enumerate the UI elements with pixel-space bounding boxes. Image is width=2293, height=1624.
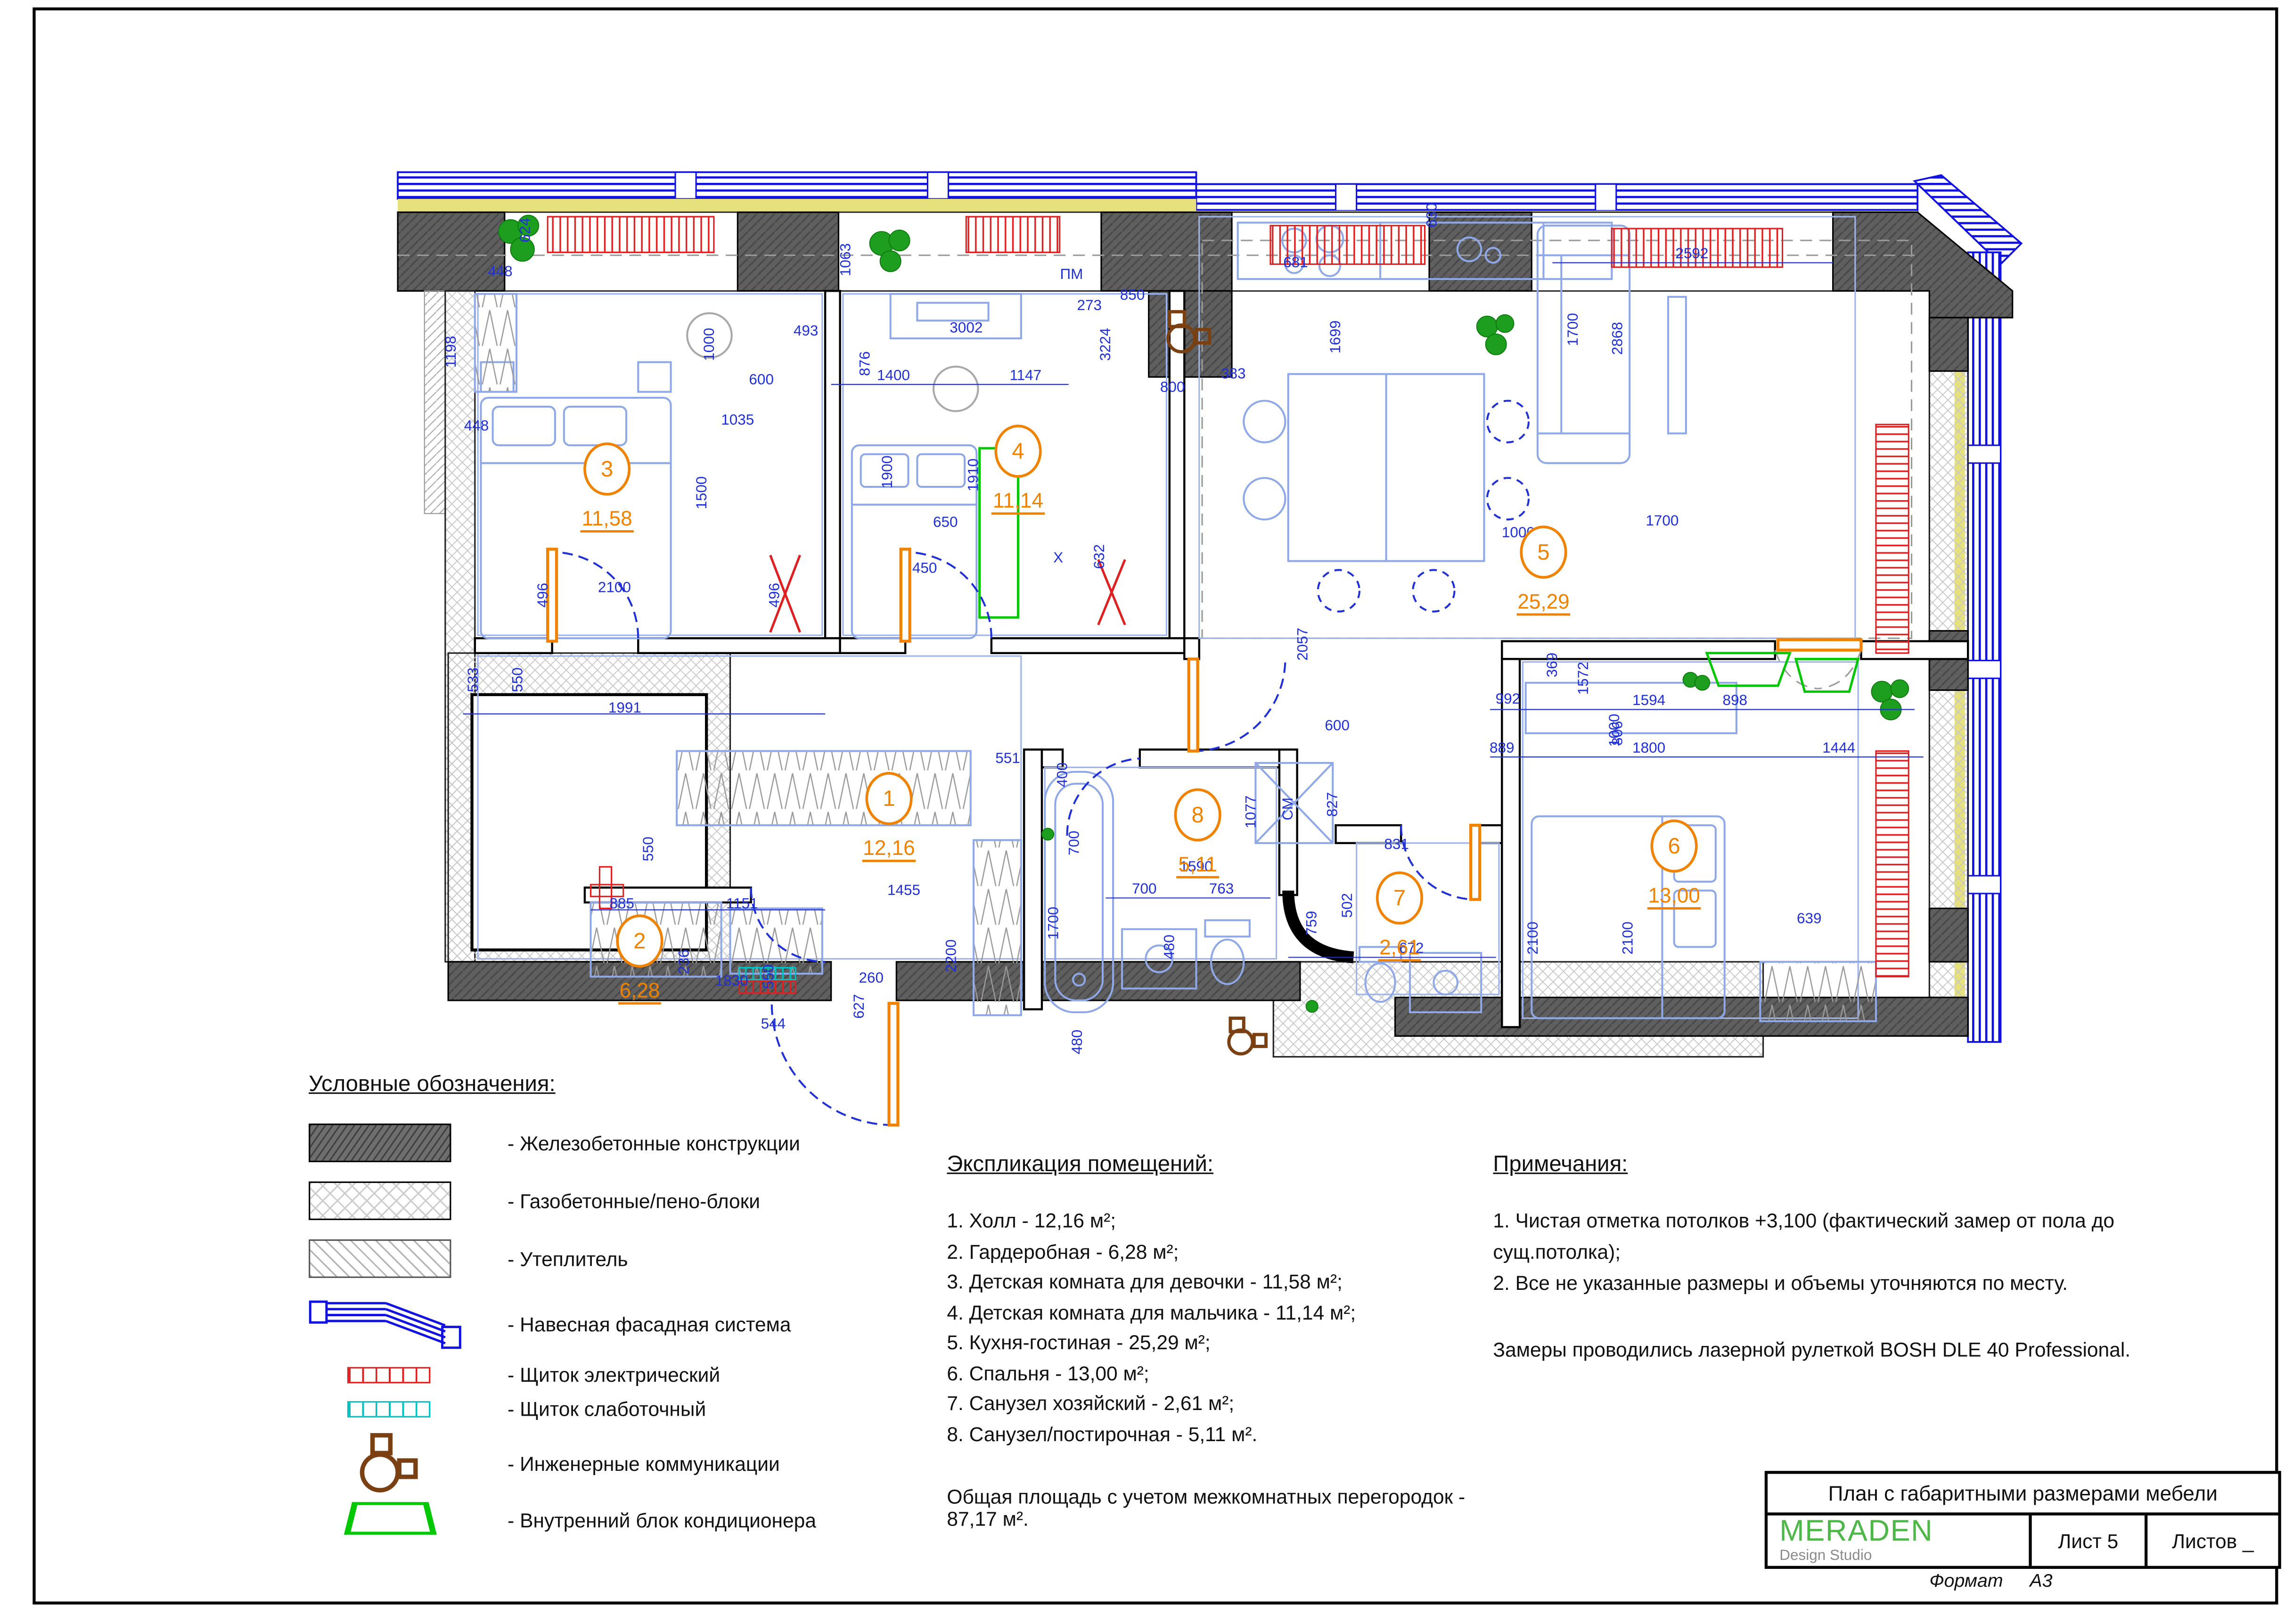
dimension-label: 1077 — [1242, 796, 1259, 828]
room-area: 13,00 — [1648, 884, 1700, 907]
notes-list: 1. Чистая отметка потолков +3,100 (факти… — [1493, 1205, 2161, 1298]
legend-swatch-cell — [309, 1297, 490, 1351]
explication-total: Общая площадь с учетом межкомнатных пере… — [947, 1486, 1511, 1530]
note-line: 1. Чистая отметка потолков +3,100 (факти… — [1493, 1205, 2161, 1267]
legend-item-concrete: - Железобетонные конструкции — [309, 1124, 828, 1162]
dimension-label: 700 — [1132, 880, 1157, 897]
dimension-label: 827 — [1324, 792, 1341, 817]
dimension-label: 831 — [1384, 836, 1409, 853]
explication-room: 4. Детская комната для мальчика - 11,14 … — [947, 1298, 1511, 1329]
dimension-label: 992 — [1496, 690, 1521, 707]
dimension-label: 493 — [794, 322, 819, 339]
dimension-label: 700 — [1065, 831, 1082, 856]
room-number: 2 — [633, 929, 646, 954]
legend-item-insulation: - Утеплитель — [309, 1239, 828, 1278]
dimension-label: 1000 — [700, 328, 717, 361]
dimension-label: 1500 — [693, 476, 710, 509]
dimension-label: 480 — [1068, 1030, 1085, 1055]
explication-heading: Экспликация помещений: — [947, 1152, 1511, 1177]
title-block-bottom: MERADEN Design Studio Лист 5 Листов _ — [1768, 1516, 2278, 1566]
format-value: А3 — [2030, 1570, 2052, 1591]
legend-item-blocks: - Газобетонные/пено-блоки — [309, 1181, 828, 1220]
dimension-label: 681 — [1283, 254, 1308, 271]
dimension-label: 3002 — [950, 319, 983, 336]
utilities-swatch-icon — [350, 1432, 418, 1494]
concrete-swatch-icon — [309, 1124, 451, 1162]
dimension-label: 550 — [509, 667, 526, 692]
legend-label: - Газобетонные/пено-блоки — [508, 1189, 760, 1212]
room-area: 11,14 — [993, 489, 1043, 512]
dimension-label: 450 — [912, 559, 937, 576]
insulation-swatch-icon — [309, 1239, 451, 1278]
explication-room: 1. Холл - 12,16 м²; — [947, 1207, 1511, 1238]
legend-item-panel-electric: - Щиток электрический — [309, 1364, 828, 1386]
dimension-label: 759 — [1303, 911, 1320, 936]
explication-room: 3. Детская комната для девочки - 11,58 м… — [947, 1268, 1511, 1298]
dimension-label: 273 — [1077, 296, 1102, 313]
explication-room: 2. Гардеробная - 6,28 м²; — [947, 1237, 1511, 1268]
dimension-label: 1198 — [442, 336, 459, 368]
brand-name: MERADEN — [1779, 1517, 2029, 1548]
dimension-label: 1991 — [608, 699, 641, 716]
room-area: 2,61 — [1379, 936, 1420, 959]
room-number: 8 — [1192, 803, 1204, 828]
room-area: 11,58 — [582, 507, 632, 530]
dimension-label: 1700 — [1045, 907, 1062, 940]
legend-swatch-cell — [309, 1501, 490, 1539]
legend-swatch-cell — [309, 1239, 490, 1278]
dimension-label: 1700 — [1646, 512, 1679, 529]
dimension-label: 2100 — [598, 579, 631, 596]
dimension-label: СМ — [1279, 797, 1296, 820]
explication-room: 6. Спальня - 13,00 м²; — [947, 1359, 1511, 1389]
dimension-label: 1900 — [878, 456, 895, 489]
dimension-label: 600 — [749, 371, 774, 388]
brand-subtitle: Design Studio — [1779, 1548, 2029, 1565]
dimension-label: 1035 — [721, 411, 754, 428]
legend-item-panel-lowcurrent: - Щиток слаботочный — [309, 1398, 828, 1420]
dimension-label: 448 — [488, 262, 513, 279]
room-number: 1 — [883, 786, 895, 811]
legend-label: - Железобетонные конструкции — [508, 1132, 800, 1154]
dimension-label: 400 — [1053, 763, 1070, 787]
dimension-label: 502 — [1338, 893, 1355, 918]
legend-swatch-cell — [309, 1432, 490, 1494]
dimension-label: 533 — [464, 667, 481, 692]
room-number: 6 — [1668, 834, 1680, 859]
dimension-label: 2868 — [1608, 322, 1625, 355]
dimension-label: 496 — [534, 583, 551, 608]
dimension-label: 800 — [1160, 378, 1185, 395]
dimension-label: 3224 — [1097, 328, 1114, 361]
facade-swatch-icon — [309, 1297, 469, 1351]
drawing-sheet: 4481198624100010633002493876140060011474… — [0, 0, 2293, 1624]
legend-swatch-cell — [309, 1367, 490, 1384]
drawing-title: План с габаритными размерами мебели — [1768, 1474, 2278, 1515]
room-area: 12,16 — [863, 837, 915, 860]
dimension-label: 236 — [675, 950, 692, 975]
ac-unit-swatch-icon — [341, 1501, 439, 1539]
legend-item-ac-unit: - Внутренний блок кондиционера — [309, 1501, 828, 1539]
legend-swatch-cell — [309, 1124, 490, 1162]
legend-label: - Щиток электрический — [508, 1364, 720, 1386]
dimension-label: 898 — [1722, 691, 1747, 708]
legend-label: - Инженерные коммуникации — [508, 1452, 780, 1475]
dimension-label: 2200 — [942, 939, 959, 972]
legend-label: - Щиток слаботочный — [508, 1398, 706, 1420]
dimension-label: ПМ — [1060, 265, 1083, 282]
dimension-label: 1910 — [965, 459, 982, 492]
dimension-label: 1063 — [837, 243, 854, 276]
dimension-label: 1699 — [1327, 320, 1343, 353]
sheets-total: Листов _ — [2145, 1516, 2278, 1566]
dimension-label: 550 — [760, 964, 777, 989]
dimension-label: 806 — [1608, 721, 1625, 746]
note-line: 2. Все не указанные размеры и объемы уто… — [1493, 1268, 2161, 1299]
dimension-label: 1594 — [1632, 691, 1665, 708]
dimension-label: 885 — [609, 894, 634, 911]
dimension-label: 632 — [1090, 544, 1107, 569]
room-area: 5,11 — [1178, 853, 1217, 876]
dimension-label: X — [1053, 549, 1063, 566]
room-number: 7 — [1393, 886, 1406, 910]
dimension-label: 850 — [1120, 286, 1145, 303]
explication-room: 8. Санузел/постирочная - 5,11 м². — [947, 1419, 1511, 1450]
room-area: 6,28 — [620, 979, 660, 1002]
room-area: 25,29 — [1517, 590, 1569, 613]
dimension-label: 1151 — [726, 894, 758, 911]
room-number: 5 — [1537, 540, 1549, 565]
dimension-label: 369 — [1543, 653, 1560, 678]
legend: Условные обозначения: - Железобетонные к… — [309, 1072, 828, 1539]
dimension-label: 480 — [1160, 935, 1177, 960]
notes-heading: Примечания: — [1493, 1152, 2161, 1177]
dimension-label: 1572 — [1574, 662, 1591, 695]
dimension-label: 630 — [1423, 203, 1440, 228]
explication-room: 5. Кухня-гостиная - 25,29 м²; — [947, 1329, 1511, 1359]
legend-swatch-cell — [309, 1401, 490, 1418]
dimension-label: 1800 — [1632, 739, 1665, 756]
dimension-label: 1830 — [715, 972, 748, 989]
panel-electric-swatch-icon — [347, 1367, 430, 1384]
dimension-label: 876 — [856, 351, 873, 376]
dimension-label: 2100 — [1524, 921, 1541, 954]
dimension-label: 1400 — [877, 366, 910, 383]
legend-item-facade: - Навесная фасадная система — [309, 1297, 828, 1351]
dimension-label: 544 — [761, 1015, 786, 1032]
brand-cell: MERADEN Design Studio — [1768, 1516, 2029, 1566]
dimension-label: 1700 — [1564, 313, 1581, 346]
panel-lowcurrent-swatch-icon — [347, 1401, 430, 1418]
dimension-label: 260 — [859, 969, 884, 986]
format-note: Формат А3 — [1929, 1570, 2052, 1591]
legend-label: - Утеплитель — [508, 1247, 628, 1270]
dimension-label: 1444 — [1822, 739, 1855, 756]
legend-swatch-cell — [309, 1181, 490, 1220]
dimension-label: 763 — [1209, 880, 1234, 897]
explication-list: 1. Холл - 12,16 м²;2. Гардеробная - 6,28… — [947, 1207, 1511, 1451]
legend-heading: Условные обозначения: — [309, 1072, 828, 1097]
dimension-label: 2057 — [1294, 628, 1311, 661]
legend-label: - Навесная фасадная система — [508, 1313, 791, 1335]
dimension-label: 624 — [516, 218, 533, 243]
room-number: 3 — [601, 457, 613, 482]
legend-list: - Железобетонные конструкции- Газобетонн… — [309, 1124, 828, 1539]
dimension-label: 550 — [639, 837, 656, 861]
dimension-label: 448 — [464, 417, 489, 434]
dimension-label: 600 — [1325, 717, 1350, 734]
notes: Примечания: 1. Чистая отметка потолков +… — [1493, 1152, 2161, 1361]
blocks-swatch-icon — [309, 1181, 451, 1220]
room-number: 4 — [1012, 439, 1024, 464]
dimension-label: 639 — [1797, 910, 1822, 927]
dimension-label: 627 — [850, 994, 867, 1019]
dimension-label: 650 — [933, 513, 958, 530]
dimension-label: 551 — [995, 749, 1020, 766]
dimension-label: 1147 — [1009, 366, 1041, 383]
format-label: Формат — [1929, 1570, 2003, 1591]
explication-room: 7. Санузел хозяйский - 2,61 м²; — [947, 1389, 1511, 1420]
dimension-label: 2592 — [1675, 245, 1708, 262]
title-block: План с габаритными размерами мебели MERA… — [1765, 1471, 2281, 1569]
legend-label: - Внутренний блок кондиционера — [508, 1509, 816, 1531]
dimension-label: 1455 — [887, 881, 920, 898]
dimension-label: 496 — [765, 583, 782, 608]
sheet-number: Лист 5 — [2029, 1516, 2145, 1566]
explication: Экспликация помещений: 1. Холл - 12,16 м… — [947, 1152, 1511, 1530]
notes-footer: Замеры проводились лазерной рулеткой BOS… — [1493, 1339, 2161, 1361]
dimension-label: 889 — [1490, 739, 1515, 756]
legend-item-utilities: - Инженерные коммуникации — [309, 1432, 828, 1494]
dimension-label: 2100 — [1619, 921, 1636, 954]
dimension-label: 383 — [1221, 365, 1246, 382]
